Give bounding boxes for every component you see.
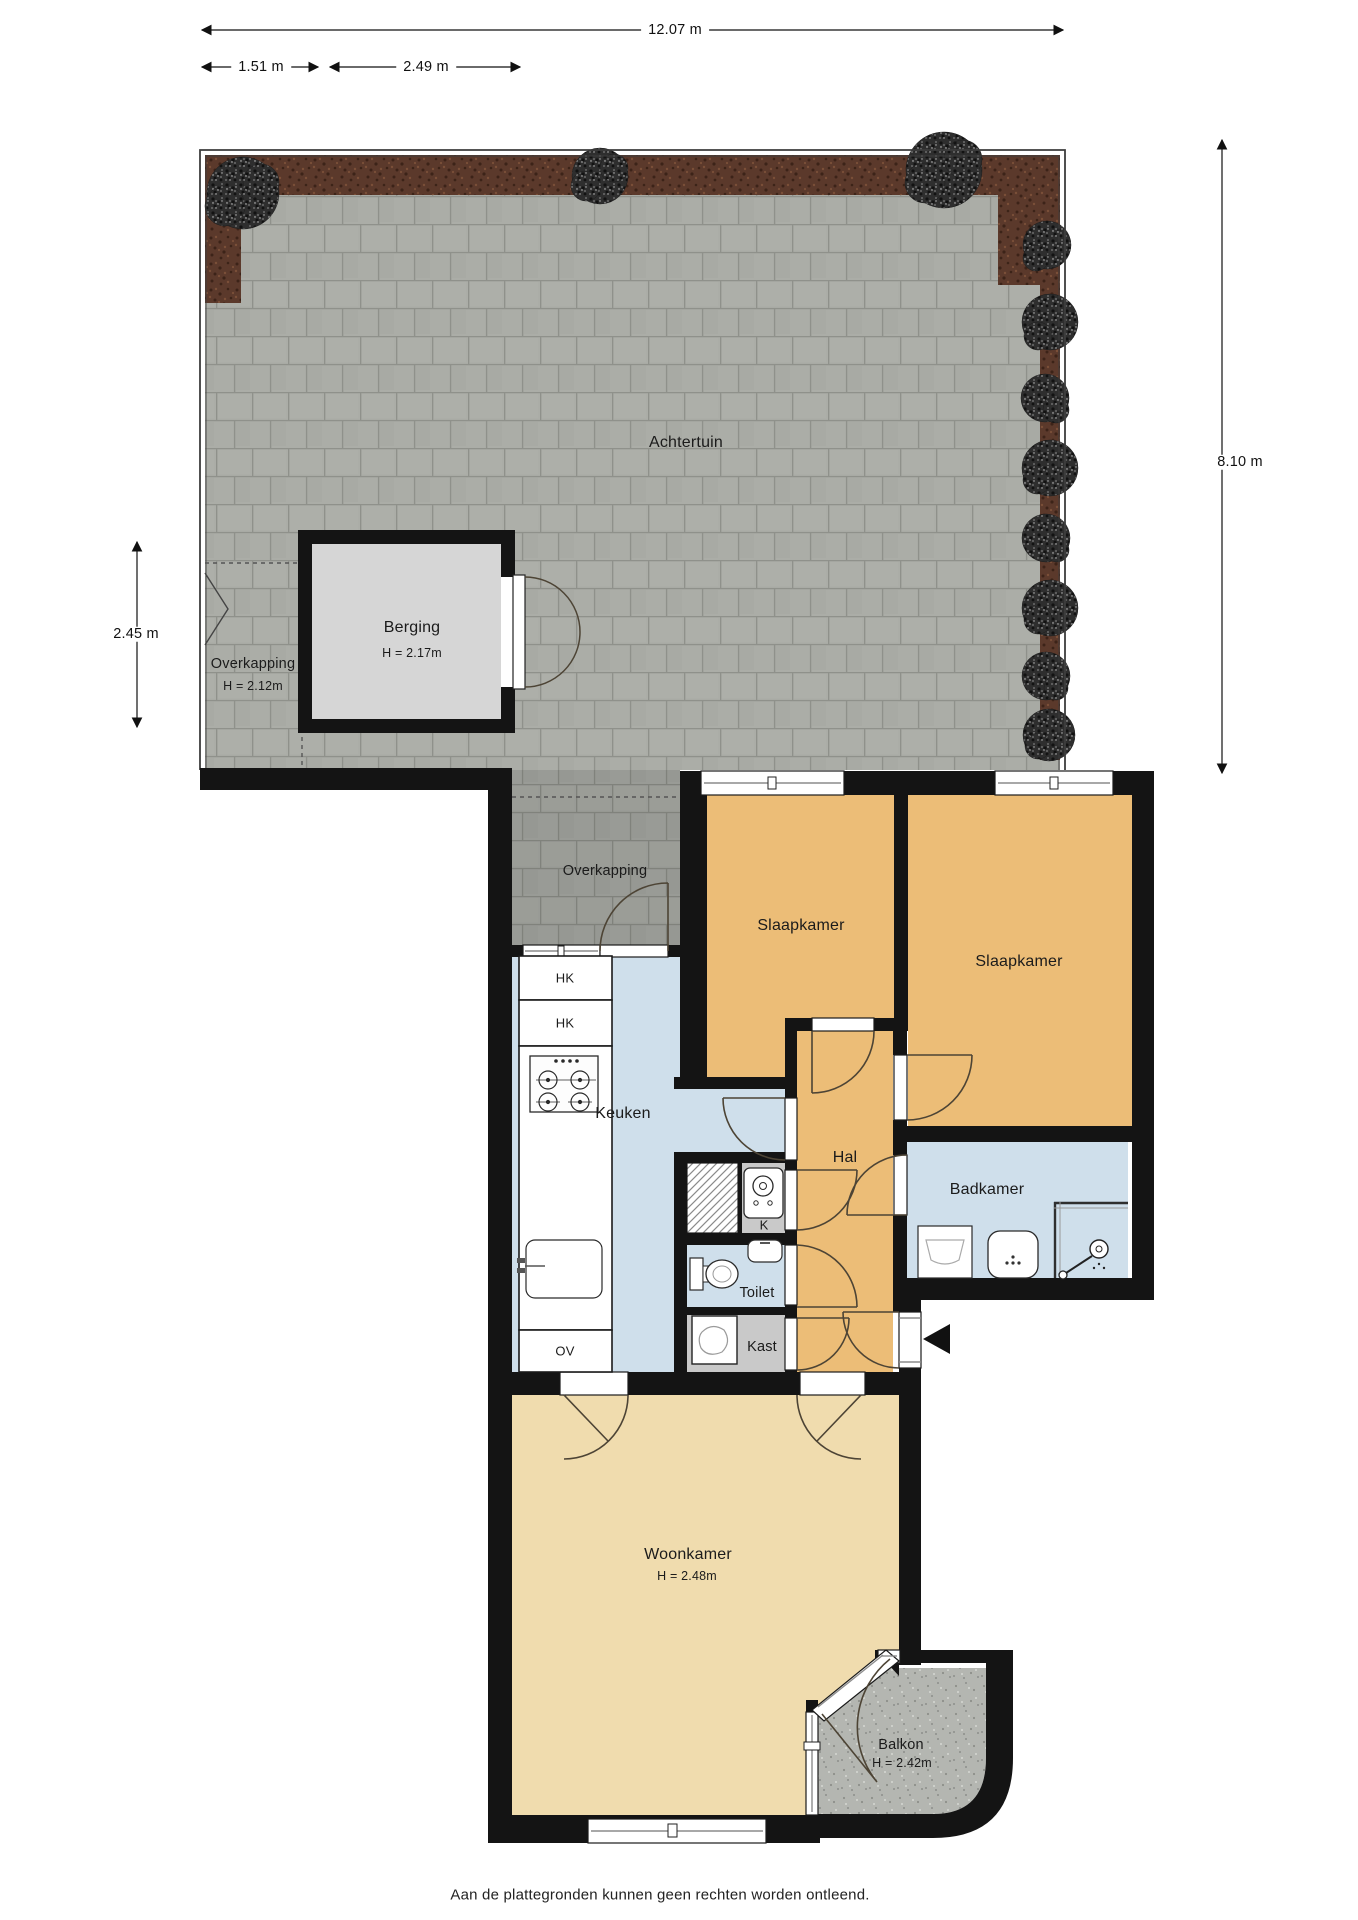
closet-label: Kast bbox=[747, 1340, 777, 1355]
kitchen-sink-icon bbox=[517, 1240, 602, 1298]
kitchen-label: Keuken bbox=[595, 1106, 650, 1122]
oven-unit-label: OV bbox=[555, 1345, 574, 1358]
toilet-bowl-icon bbox=[706, 1260, 738, 1288]
boiler-closet-label: K bbox=[760, 1219, 769, 1232]
balcony-height: H = 2.42m bbox=[872, 1757, 932, 1770]
floorplan-canvas: 12.07 m 1.51 m 2.49 m 2.45 m 8.10 m Acht… bbox=[0, 0, 1358, 1920]
garden-label: Achtertuin bbox=[649, 435, 723, 451]
bathroom-sink-icon bbox=[918, 1226, 972, 1278]
garden-overkapping-height: H = 2.12m bbox=[223, 680, 283, 693]
disclaimer-text: Aan de plattegronden kunnen geen rechten… bbox=[450, 1888, 869, 1903]
hall-label: Hal bbox=[833, 1150, 858, 1166]
dim-overkapping-width: 1.51 m bbox=[231, 60, 291, 75]
kitchen-hall-door-opening bbox=[785, 1098, 797, 1160]
upper-cabinet-2-label: HK bbox=[556, 1017, 574, 1030]
shaft-hatched-area bbox=[687, 1163, 738, 1233]
toilet-tank-icon bbox=[690, 1258, 703, 1290]
boiler-icon bbox=[744, 1168, 783, 1218]
floorplan-drawing bbox=[0, 0, 1358, 1920]
bathroom-door-opening bbox=[894, 1155, 907, 1215]
bedroom-1-door-opening bbox=[812, 1018, 874, 1031]
berging-label: Berging bbox=[384, 620, 441, 636]
bedroom-2-door-opening bbox=[894, 1055, 907, 1120]
dim-berging-width: 2.49 m bbox=[396, 60, 456, 75]
toilet-label: Toilet bbox=[739, 1286, 774, 1301]
garden-overkapping-label: Overkapping bbox=[211, 657, 295, 672]
stove-icon bbox=[530, 1056, 598, 1112]
bedroom-2-label: Slaapkamer bbox=[975, 954, 1062, 970]
living-room-label: Woonkamer bbox=[644, 1547, 732, 1563]
upper-cabinet-1-label: HK bbox=[556, 972, 574, 985]
house-overkapping-label: Overkapping bbox=[563, 864, 647, 879]
closet-fixture-icon bbox=[692, 1316, 737, 1364]
closet-door-opening bbox=[785, 1318, 797, 1370]
bathroom-label: Badkamer bbox=[950, 1182, 1025, 1198]
entrance-door-opening bbox=[899, 1312, 921, 1368]
living-room-height: H = 2.48m bbox=[657, 1570, 717, 1583]
toilet-door-opening bbox=[785, 1245, 797, 1305]
dim-overkapping-depth: 2.45 m bbox=[106, 627, 166, 642]
washbasin-icon bbox=[988, 1231, 1038, 1278]
dim-garden-depth: 8.10 m bbox=[1210, 455, 1270, 470]
bedroom-1-label: Slaapkamer bbox=[757, 918, 844, 934]
kitchen-living-door-opening bbox=[560, 1372, 628, 1395]
hall-living-door-opening bbox=[800, 1372, 865, 1395]
balcony-label: Balkon bbox=[878, 1738, 924, 1753]
dim-total-width: 12.07 m bbox=[641, 23, 709, 38]
boiler-closet-door-opening bbox=[785, 1170, 797, 1230]
entrance-arrow-icon bbox=[923, 1324, 950, 1354]
berging-height: H = 2.17m bbox=[382, 647, 442, 660]
